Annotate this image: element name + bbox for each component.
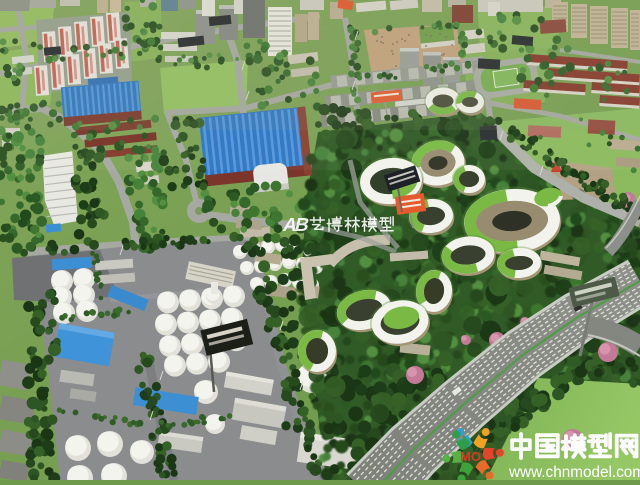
svg-text:MO: MO [460,449,481,464]
svg-text:www.chnmodel.com: www.chnmodel.com [508,464,640,480]
